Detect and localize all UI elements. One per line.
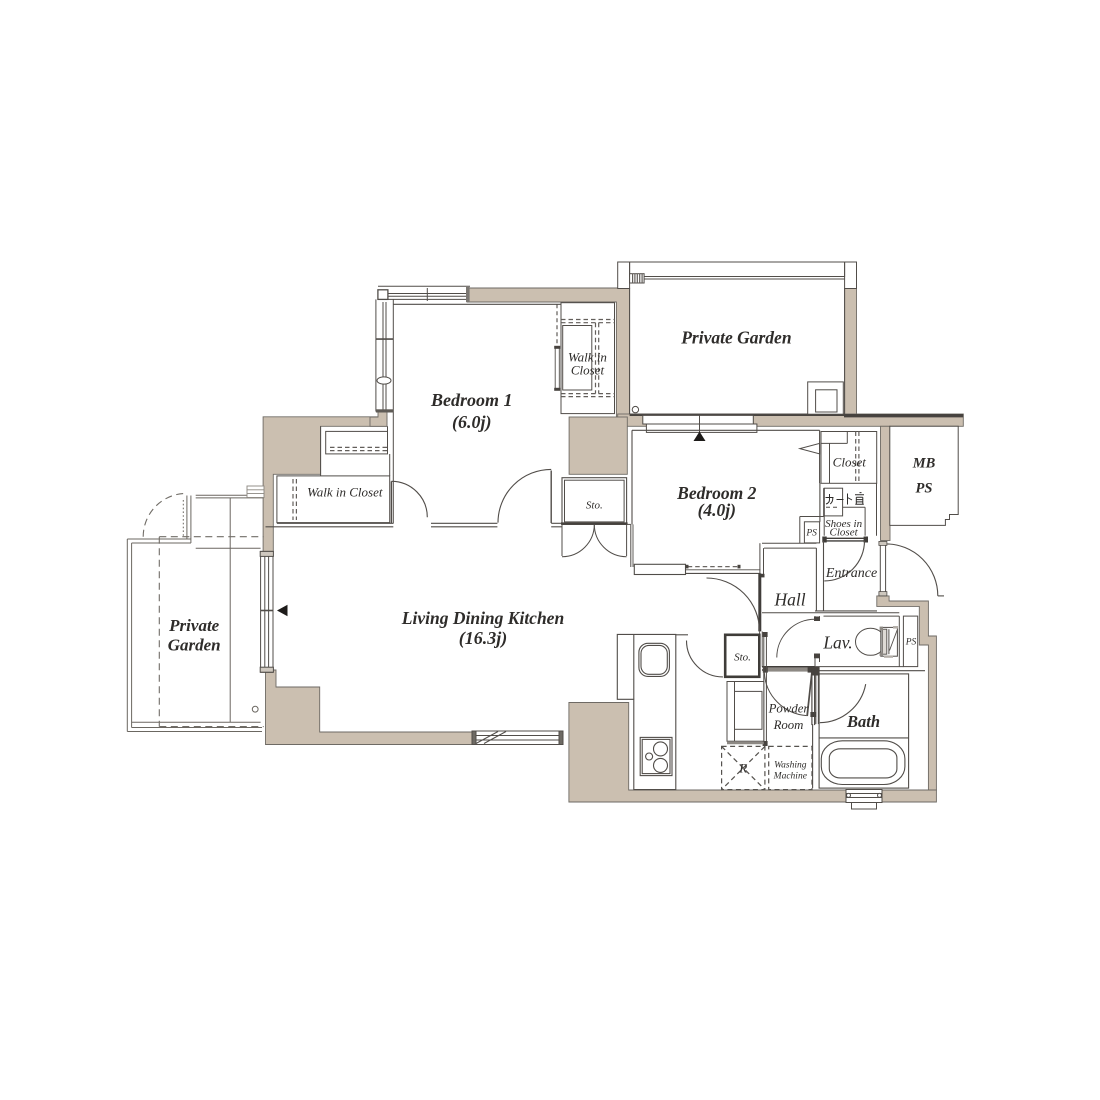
svg-text:(6.0j): (6.0j) [452, 412, 492, 433]
svg-text:Hall: Hall [773, 590, 805, 610]
svg-text:Walk in Closet: Walk in Closet [307, 485, 383, 500]
svg-text:PS: PS [805, 529, 817, 539]
svg-text:PS: PS [916, 480, 933, 496]
svg-text:PS: PS [905, 638, 917, 648]
svg-text:Lav.: Lav. [822, 632, 852, 652]
svg-text:Garden: Garden [168, 636, 221, 655]
svg-text:Closet: Closet [833, 455, 867, 470]
svg-text:Closet: Closet [571, 363, 605, 378]
svg-text:Entrance: Entrance [825, 566, 877, 581]
svg-text:Living Dining Kitchen: Living Dining Kitchen [401, 608, 564, 628]
svg-text:Machine: Machine [773, 772, 807, 782]
svg-text:Room: Room [773, 718, 804, 732]
svg-text:Sto.: Sto. [734, 651, 751, 663]
svg-text:Bath: Bath [846, 712, 880, 731]
svg-text:R: R [738, 761, 747, 776]
svg-text:Private Garden: Private Garden [680, 328, 791, 348]
svg-text:MB: MB [912, 456, 936, 472]
svg-text:(16.3j): (16.3j) [459, 628, 508, 649]
svg-text:Private: Private [168, 616, 219, 635]
svg-text:Sto.: Sto. [586, 499, 603, 511]
svg-text:Powder: Powder [768, 701, 810, 715]
svg-text:Closet: Closet [830, 527, 859, 539]
svg-text:Washing: Washing [774, 761, 807, 771]
svg-text:(4.0j): (4.0j) [698, 500, 736, 520]
svg-text:Bedroom 1: Bedroom 1 [430, 390, 513, 410]
